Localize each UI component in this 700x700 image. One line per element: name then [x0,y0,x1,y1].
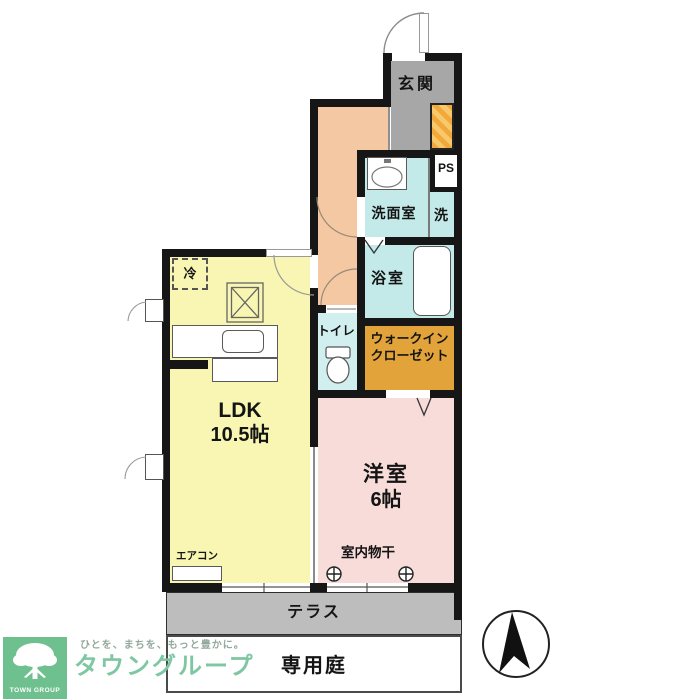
bedroom-terrace-window-opening [327,583,408,592]
logo-tagline: ひとを、まちを、もっと豊かに。 [80,640,280,651]
north-arrow-icon [483,611,549,677]
toilet-door-opening [326,305,357,313]
bedroom-size-label: 6帖 [336,489,436,511]
terrace-label: テラス [264,604,364,622]
ldk-left-window-lower [145,454,164,480]
pipe-space-label: PS [432,162,460,175]
indoor-drying-label: 室内物干 [316,546,420,561]
logo-brand-text: タウングループ [74,654,294,680]
aircon-label: エアコン [168,551,226,563]
vanity-sink-unit [367,157,407,190]
bedroom-label: 洋室 [336,463,436,486]
wall-washroom-left [357,150,365,197]
wall-bath-left-toilet-right [357,237,365,390]
bath-door-opening [365,237,385,245]
wic-door-opening [386,390,430,398]
ldk-door-leaf [266,249,312,257]
kitchen-sink [222,330,264,353]
ldk-label: LDK [190,399,290,422]
tree-icon [3,639,67,687]
kitchen-counter-return [212,358,278,382]
wall-right-terrace-stub [454,592,462,620]
refrigerator-label: 冷 [183,267,196,281]
window-upper-swing-arc [128,302,146,321]
washroom-label: 洗面室 [362,206,426,221]
refrigerator-box: 冷 [172,258,208,290]
room-hall-lower-floor [318,150,357,307]
entrance-door-arc [384,13,424,53]
wic-label-line1: ウォークイン [365,332,454,346]
aircon-box [172,566,222,581]
ldk-terrace-window-opening [222,583,310,592]
bathtub-icon [413,246,451,316]
room-hall-upper-floor [318,107,389,150]
ldk-bedroom-sliding-door [313,447,315,583]
genkan-label: 玄関 [385,76,449,94]
washer-label: 洗 [429,208,453,223]
floorplan-canvas: 冷 [0,0,700,700]
shoe-cabinet-icon [430,103,454,150]
wall-bottom [162,583,462,592]
kitchen-counter-end-bar [162,360,208,369]
ldk-left-window-upper [145,299,164,322]
wic-label-line2: クローゼット [365,349,454,363]
ldk-size-label: 10.5帖 [190,424,290,446]
logo-square-text: TOWN GROUP [3,687,67,694]
wall-hall-top [310,99,391,107]
wall-wic-top [357,318,462,326]
ldk-door-opening-vertical [310,255,318,288]
genkan-step-line [388,107,390,150]
bath-label: 浴室 [362,271,414,288]
toilet-label: トイレ [314,325,358,339]
window-lower-swing-arc [125,457,146,479]
entrance-door-leaf [419,13,429,53]
town-group-logo: TOWN GROUP [3,637,67,699]
